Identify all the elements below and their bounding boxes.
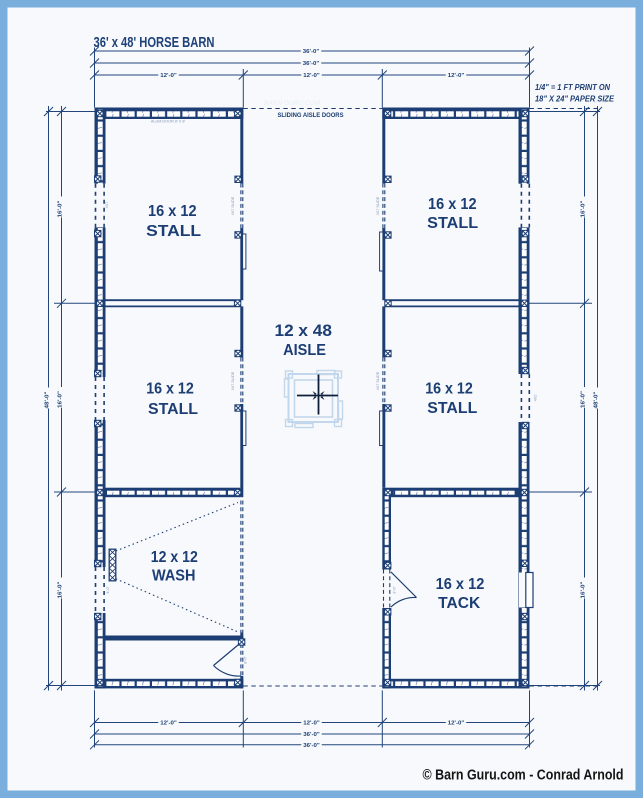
svg-text:3'-0": 3'-0" (106, 586, 110, 594)
svg-text:12'-0": 12'-0" (303, 721, 320, 727)
svg-text:16'-0": 16'-0" (581, 391, 587, 408)
svg-text:4X7 SLIDE: 4X7 SLIDE (376, 196, 380, 215)
svg-text:STALL: STALL (146, 223, 201, 240)
svg-text:AISLE: AISLE (283, 342, 326, 359)
svg-text:16'-0": 16'-0" (58, 391, 64, 408)
svg-text:STALL: STALL (427, 400, 477, 417)
svg-text:16 x 12: 16 x 12 (148, 203, 197, 220)
svg-text:48'-0": 48'-0" (45, 391, 51, 408)
svg-text:16 x 12: 16 x 12 (425, 381, 473, 398)
svg-text:12'-0": 12'-0" (160, 73, 177, 79)
svg-text:36'-0": 36'-0" (303, 732, 320, 738)
svg-text:© Barn Guru.com - Conrad Arnol: © Barn Guru.com - Conrad Arnold (423, 768, 624, 784)
svg-text:16'-0": 16'-0" (58, 581, 64, 598)
svg-text:12'-0": 12'-0" (448, 73, 465, 79)
svg-text:4X7: 4X7 (105, 202, 109, 209)
svg-text:8'-0": 8'-0" (244, 656, 248, 664)
svg-text:12'-0": 12'-0" (448, 721, 465, 727)
svg-text:16'-0": 16'-0" (581, 581, 587, 598)
svg-text:SIZE: SIZE (593, 98, 608, 105)
svg-text:STALL: STALL (148, 401, 198, 418)
svg-text:16 x 12: 16 x 12 (436, 576, 485, 593)
svg-text:16 x 12: 16 x 12 (428, 196, 477, 213)
svg-text:12'-0": 12'-0" (160, 721, 177, 727)
svg-text:4X7 SLIDE: 4X7 SLIDE (231, 371, 235, 390)
svg-text:12 x 48: 12 x 48 (275, 321, 332, 340)
svg-text:36' x 48' HORSE BARN: 36' x 48' HORSE BARN (94, 35, 215, 51)
svg-text:SLIDING AISLE DOORS: SLIDING AISLE DOORS (278, 112, 344, 119)
svg-text:WASH: WASH (152, 568, 196, 585)
svg-text:16'-0": 16'-0" (58, 200, 64, 217)
svg-text:36'-0": 36'-0" (303, 61, 320, 67)
svg-text:16'-0": 16'-0" (581, 200, 587, 217)
svg-text:BARN GURU.COM: BARN GURU.COM (264, 100, 321, 107)
svg-text:48'-0": 48'-0" (594, 391, 600, 408)
svg-text:ALUM DOOR 8' X 8': ALUM DOOR 8' X 8' (151, 120, 186, 124)
svg-text:STALL: STALL (427, 215, 478, 232)
svg-text:4X2: 4X2 (534, 395, 538, 402)
svg-text:12'-0": 12'-0" (303, 73, 320, 79)
svg-text:TACK: TACK (438, 595, 481, 612)
svg-text:4X7 SLIDE: 4X7 SLIDE (376, 371, 380, 390)
svg-text:ON: ON (595, 86, 605, 93)
svg-text:16 x 12: 16 x 12 (146, 381, 194, 398)
svg-text:4X7 SLIDE: 4X7 SLIDE (231, 196, 235, 215)
svg-text:3'-0": 3'-0" (393, 586, 397, 594)
svg-text:36'-0": 36'-0" (303, 743, 320, 749)
svg-text:12 x 12: 12 x 12 (151, 549, 198, 566)
svg-text:36'-0": 36'-0" (303, 49, 320, 55)
